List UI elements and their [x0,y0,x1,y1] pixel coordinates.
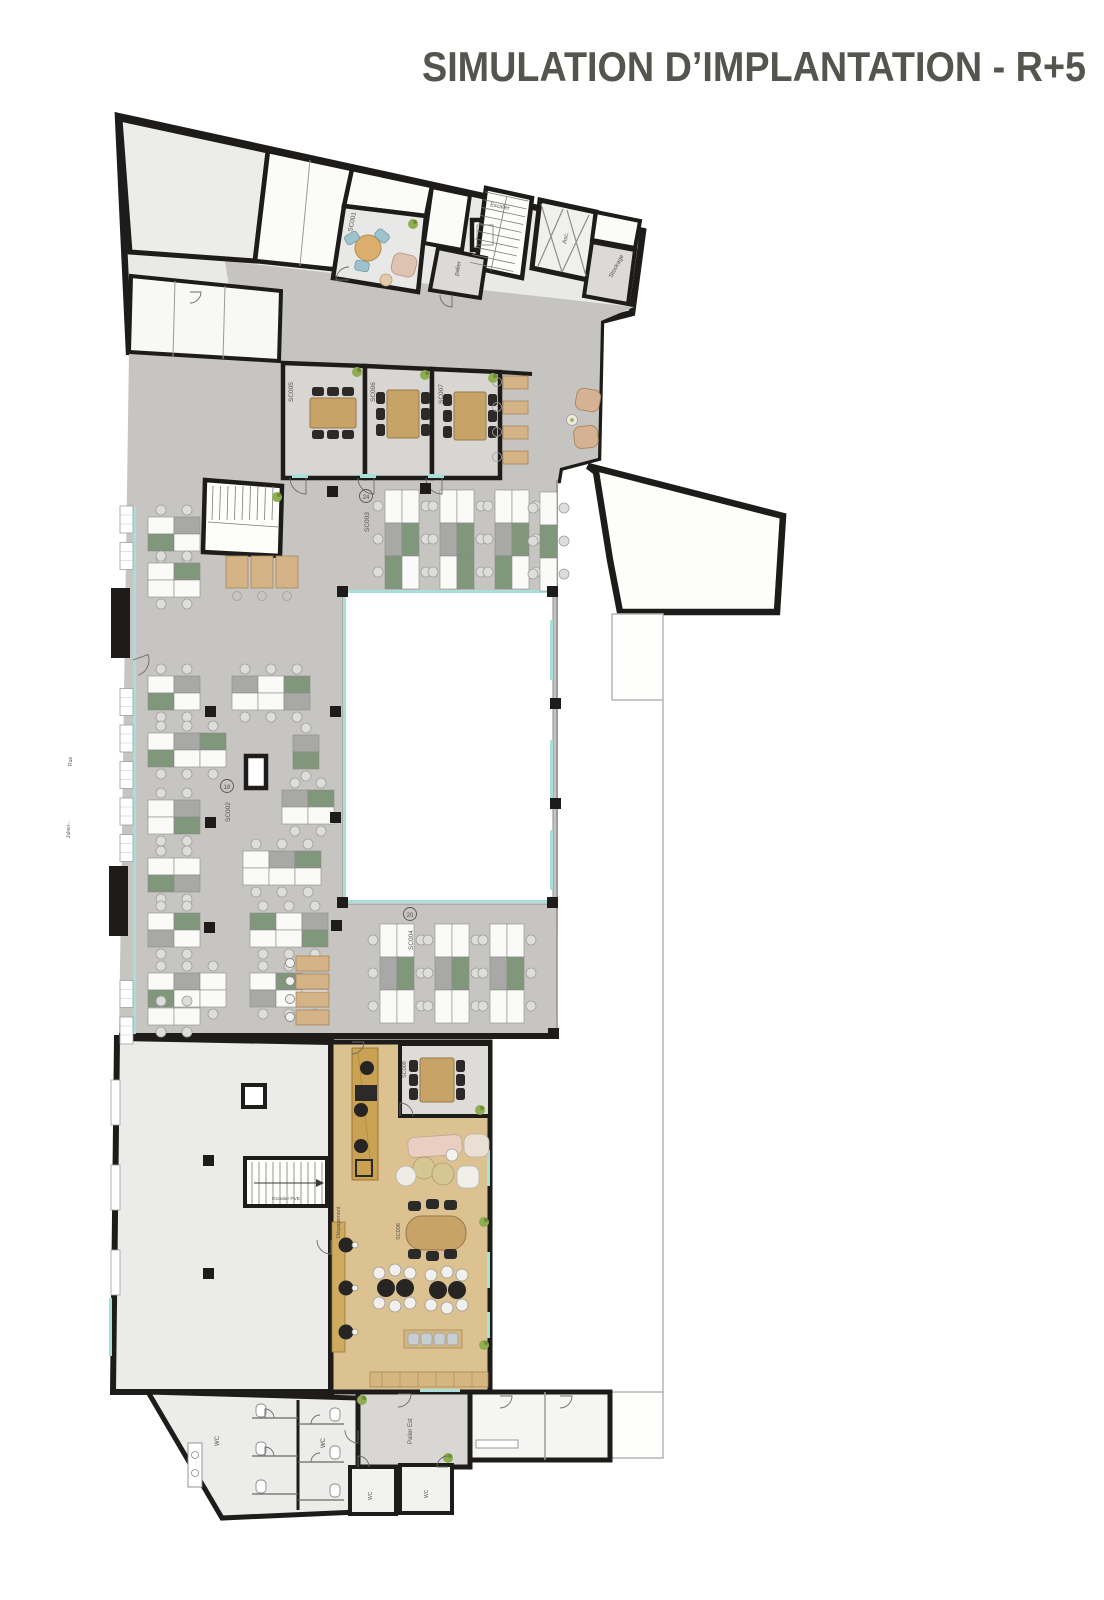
plant-icon [420,370,430,380]
glazing-strip [487,1252,490,1288]
task-chair [310,901,320,911]
meeting-table [310,398,356,428]
task-chair [156,901,166,911]
cushion [434,1333,445,1345]
task-chair [182,836,192,846]
task-chair [182,769,192,779]
desk-cell [200,733,226,750]
desk-cell [148,858,174,875]
lounge-chair [457,1166,479,1188]
task-chair [559,569,569,579]
armchair [573,425,599,449]
round-table [429,1281,447,1299]
desk-cell [397,957,414,990]
room-label-meeting2: SC006 [370,382,377,402]
chair-white [441,1302,453,1314]
desk-cell [148,750,174,767]
phone-booth [296,956,329,971]
bar-stool [339,1325,354,1340]
glazing-strip [550,830,553,890]
chair [426,1251,439,1261]
task-chair [156,1027,166,1037]
desk-cell [250,973,276,990]
desk-cell [495,490,512,523]
toilet [330,1484,340,1497]
desk-cell [385,490,402,523]
chair [409,1088,418,1100]
cushion [447,1333,458,1345]
plant-small [570,418,574,422]
task-chair [526,968,536,978]
chair-white [456,1299,468,1311]
bar-stool [339,1238,354,1253]
task-chair [156,721,166,731]
seat-count: 24 [363,495,370,501]
room-label-escalier-bottom: Escalier PVE [272,1196,300,1202]
sink-counter [188,1443,202,1487]
desk-cell [174,973,200,990]
glazing-strip [292,474,308,478]
desk-cell [232,693,258,710]
task-chair [182,901,192,911]
desk-cell [174,913,200,930]
desk-cell [148,913,174,930]
task-chair [423,968,433,978]
chair [409,1074,418,1086]
banquette [370,1372,488,1387]
room-label-palier-est: Palier Est [408,1418,414,1444]
desk-cell [243,851,269,868]
task-chair [266,664,276,674]
desk-cell [250,990,276,1007]
chair [488,410,497,422]
desk-cell [174,517,200,534]
task-chair [277,839,287,849]
glazing-strip [345,900,552,903]
plant-icon [362,1396,366,1400]
glazing-strip [550,740,553,800]
column [205,817,216,828]
task-chair [182,961,192,971]
plant-icon [479,1340,489,1350]
bar-stool-back [352,1242,358,1248]
column [203,1155,214,1166]
desk-cell [269,851,295,868]
glazing-strip [428,474,444,478]
task-chair [182,599,192,609]
task-chair [156,505,166,515]
desk-cell [148,875,174,892]
task-chair [428,567,438,577]
column [420,483,431,494]
desk-cell [232,676,258,693]
desk-cell [174,534,200,551]
plant-icon [480,1106,484,1110]
wall-pier [111,588,130,658]
task-chair [526,935,536,945]
phone-booth [296,1010,329,1025]
desk-cell [507,957,524,990]
desk-cell [435,990,452,1023]
desk-cell [284,693,310,710]
desk-cell [440,556,457,589]
window [120,798,133,825]
glazing-strip [487,1312,490,1338]
desk-cell [308,790,334,807]
task-chair [423,935,433,945]
plant-icon [357,368,361,372]
glazing-strip [133,506,136,1034]
round-table [396,1279,414,1297]
desk-cell [276,913,302,930]
room-label-cafeteria-dining: SC008 [396,1223,402,1240]
task-chair [559,536,569,546]
counter [476,1440,518,1448]
window [120,725,133,752]
toilet [256,1480,266,1493]
plant-icon [425,371,429,375]
coffee-table [446,1149,458,1161]
desk-cell [495,523,512,556]
room-label-wc-left: WC [215,1435,221,1446]
glazing-strip [360,474,376,478]
seat-count: 20 [407,913,414,919]
bar-stool-back [352,1285,358,1291]
task-chair [292,712,302,722]
neighbor-outline [610,1392,663,1458]
task-chair [266,712,276,722]
desk-cell [258,693,284,710]
bar-stool-back [352,1329,358,1335]
task-chair [156,664,166,674]
wc-small-left [350,1467,396,1514]
task-chair [368,1001,378,1011]
armchair [574,387,601,413]
courtyard-pier [547,586,558,597]
desk-cell [174,930,200,947]
room-label-open-mid: SC002 [225,802,232,822]
toilet [256,1442,266,1455]
task-chair [528,536,538,546]
desk-cell [380,957,397,990]
desk-cell [302,930,328,947]
armchair [464,1134,489,1157]
plant-icon [277,493,281,497]
rooms-row-left [129,276,281,361]
phone-booth [503,401,528,414]
toilet [330,1446,340,1459]
column [205,706,216,717]
task-chair [156,712,166,722]
task-chair [483,501,493,511]
glazing-strip [345,590,552,593]
desk-cell [174,858,200,875]
desk-cell [490,924,507,957]
task-chair [292,664,302,674]
page-title: SIMULATION D’IMPLANTATION - R+5 [422,43,1086,90]
desk-cell [174,676,200,693]
desk-cell [540,492,557,525]
lounge-chair [396,1166,416,1186]
task-chair [428,534,438,544]
window [111,1165,120,1210]
desk-cell [148,676,174,693]
chair-white [441,1266,453,1278]
meeting-table [420,1058,454,1102]
desk-cell [284,676,310,693]
task-chair [277,887,287,897]
stool [286,995,295,1004]
plant-icon [272,492,282,502]
desk-cell [540,525,557,558]
desk-cell [440,490,457,523]
chair [312,387,324,396]
desk-cell [435,924,452,957]
task-chair [290,826,300,836]
desk-cell [148,930,174,947]
desk-cell [380,924,397,957]
task-chair [240,712,250,722]
chair [444,1249,457,1259]
column [327,486,338,497]
task-chair [483,534,493,544]
task-chair [528,503,538,513]
stool [286,977,295,986]
glazing-strip [343,592,346,902]
task-chair [258,961,268,971]
task-chair [182,664,192,674]
plant-icon [352,367,362,377]
task-chair [373,501,383,511]
desk-cell [512,490,529,523]
chair [421,424,430,436]
wc-block-left [148,1392,358,1518]
plant-icon [475,1105,485,1115]
chair [443,426,452,438]
desk-cell [490,957,507,990]
courtyard-pier [547,897,558,908]
locker [251,556,273,588]
desk-cell [512,523,529,556]
desk-cell [293,735,319,752]
task-chair [258,949,268,959]
desk-cell [200,750,226,767]
chair [444,1200,457,1210]
desk-cell [174,693,200,710]
task-chair [156,599,166,609]
desk-cell [282,790,308,807]
desk-cell [148,693,174,710]
phone-booth [296,992,329,1007]
rooms-right-bottom [470,1392,610,1460]
neighbor-outline [612,614,663,700]
task-chair [373,567,383,577]
desk-cell [148,563,174,580]
task-chair [156,836,166,846]
wall-pier [109,866,128,936]
wall [500,372,532,374]
desk-cell [258,676,284,693]
glazing-strip [487,1150,490,1186]
pouf [432,1163,454,1185]
phone-booth [503,376,528,389]
column [330,706,341,717]
desk-cell [148,973,174,990]
chair-white [389,1264,401,1276]
desk-cell [243,868,269,885]
chair [327,387,339,396]
task-chair [251,887,261,897]
stool [354,1103,368,1117]
desk-cell [148,1008,174,1025]
chair [421,408,430,420]
task-chair [478,968,488,978]
round-table [448,1281,466,1299]
chair-white [373,1267,385,1279]
desk-cell [174,875,200,892]
desk-cell [148,800,174,817]
desk-cell [250,930,276,947]
room-label-cafeteria-meeting: SC009 [402,1061,408,1078]
desk-cell [402,523,419,556]
desk-cell [440,523,457,556]
task-chair [316,778,326,788]
column [331,920,342,931]
room-label-wc-small-right: WC [424,1489,430,1498]
meeting-table [387,390,419,438]
task-chair [208,769,218,779]
desk-cell [452,924,469,957]
window [120,762,133,789]
toilet [256,1404,266,1417]
plant-icon [357,1395,367,1405]
task-chair [182,846,192,856]
street-label-2: Julien-... [66,819,72,838]
seat-count: 18 [224,785,231,791]
window [120,835,133,862]
task-chair [316,826,326,836]
task-chair [182,551,192,561]
task-chair [373,534,383,544]
glazing-strip [420,1389,460,1392]
task-chair [303,839,313,849]
desk-cell [174,750,200,767]
phone-booth [503,426,528,439]
wc-small-right [400,1465,452,1513]
task-chair [251,839,261,849]
chair [426,1199,439,1209]
desk-cell [148,580,174,597]
cushion [421,1333,432,1345]
plant-icon [443,1453,453,1463]
window [120,543,133,570]
desk-cell [293,752,319,769]
task-chair [284,949,294,959]
task-chair [156,551,166,561]
desk-cell [457,556,474,589]
desk-cell [507,990,524,1023]
column [246,756,266,788]
task-chair [208,961,218,971]
chair [443,410,452,422]
stool [286,959,295,968]
desk-cell [200,990,226,1007]
column [203,1268,214,1279]
lounge-chair [354,260,370,272]
task-chair [182,712,192,722]
task-chair [526,1001,536,1011]
chair [376,424,385,436]
plant-icon [413,220,417,224]
desk-cell [512,556,529,589]
plant-icon [493,374,497,378]
cushion [408,1333,419,1345]
room-palier-est [358,1392,470,1467]
locker [226,556,248,588]
task-chair [559,503,569,513]
chair-white [404,1267,416,1279]
courtyard-pier [550,698,561,709]
room-large-topleft [120,119,268,261]
plant-icon [408,219,418,229]
plant-icon [484,1341,488,1345]
task-chair [182,949,192,959]
chair-white [389,1300,401,1312]
task-chair [208,1009,218,1019]
stool [354,1139,368,1153]
courtyard-pier [337,897,348,908]
task-chair [301,723,311,733]
desk-cell [457,490,474,523]
task-chair [156,961,166,971]
desk-cell [295,851,321,868]
chair [456,1060,465,1072]
desk-cell [435,957,452,990]
bar-stool [339,1281,354,1296]
task-chair [156,788,166,798]
chair-white [456,1269,468,1281]
chair [488,394,497,406]
window [120,689,133,716]
task-chair [208,721,218,731]
chair [376,392,385,404]
courtyard-void [343,592,553,904]
chair [408,1249,421,1259]
floor-plan-page: SIMULATION D’IMPLANTATION - R+5 [0,0,1104,1600]
glazing-strip [550,620,553,680]
desk-cell [148,817,174,834]
task-chair [156,769,166,779]
phone-booth [296,974,329,989]
task-chair [290,778,300,788]
desk-cell [302,913,328,930]
task-chair [368,935,378,945]
task-chair [428,501,438,511]
chair [342,430,354,439]
locker [276,556,298,588]
desk-cell [174,1008,200,1025]
desk-cell [174,563,200,580]
plant-icon [484,1218,488,1222]
desk-cell [269,868,295,885]
desk-cell [380,990,397,1023]
task-chair [182,721,192,731]
task-chair [182,1027,192,1037]
room-label-wc-center: WC [321,1437,327,1448]
task-chair [303,887,313,897]
desk-cell [452,990,469,1023]
desk-cell [174,733,200,750]
